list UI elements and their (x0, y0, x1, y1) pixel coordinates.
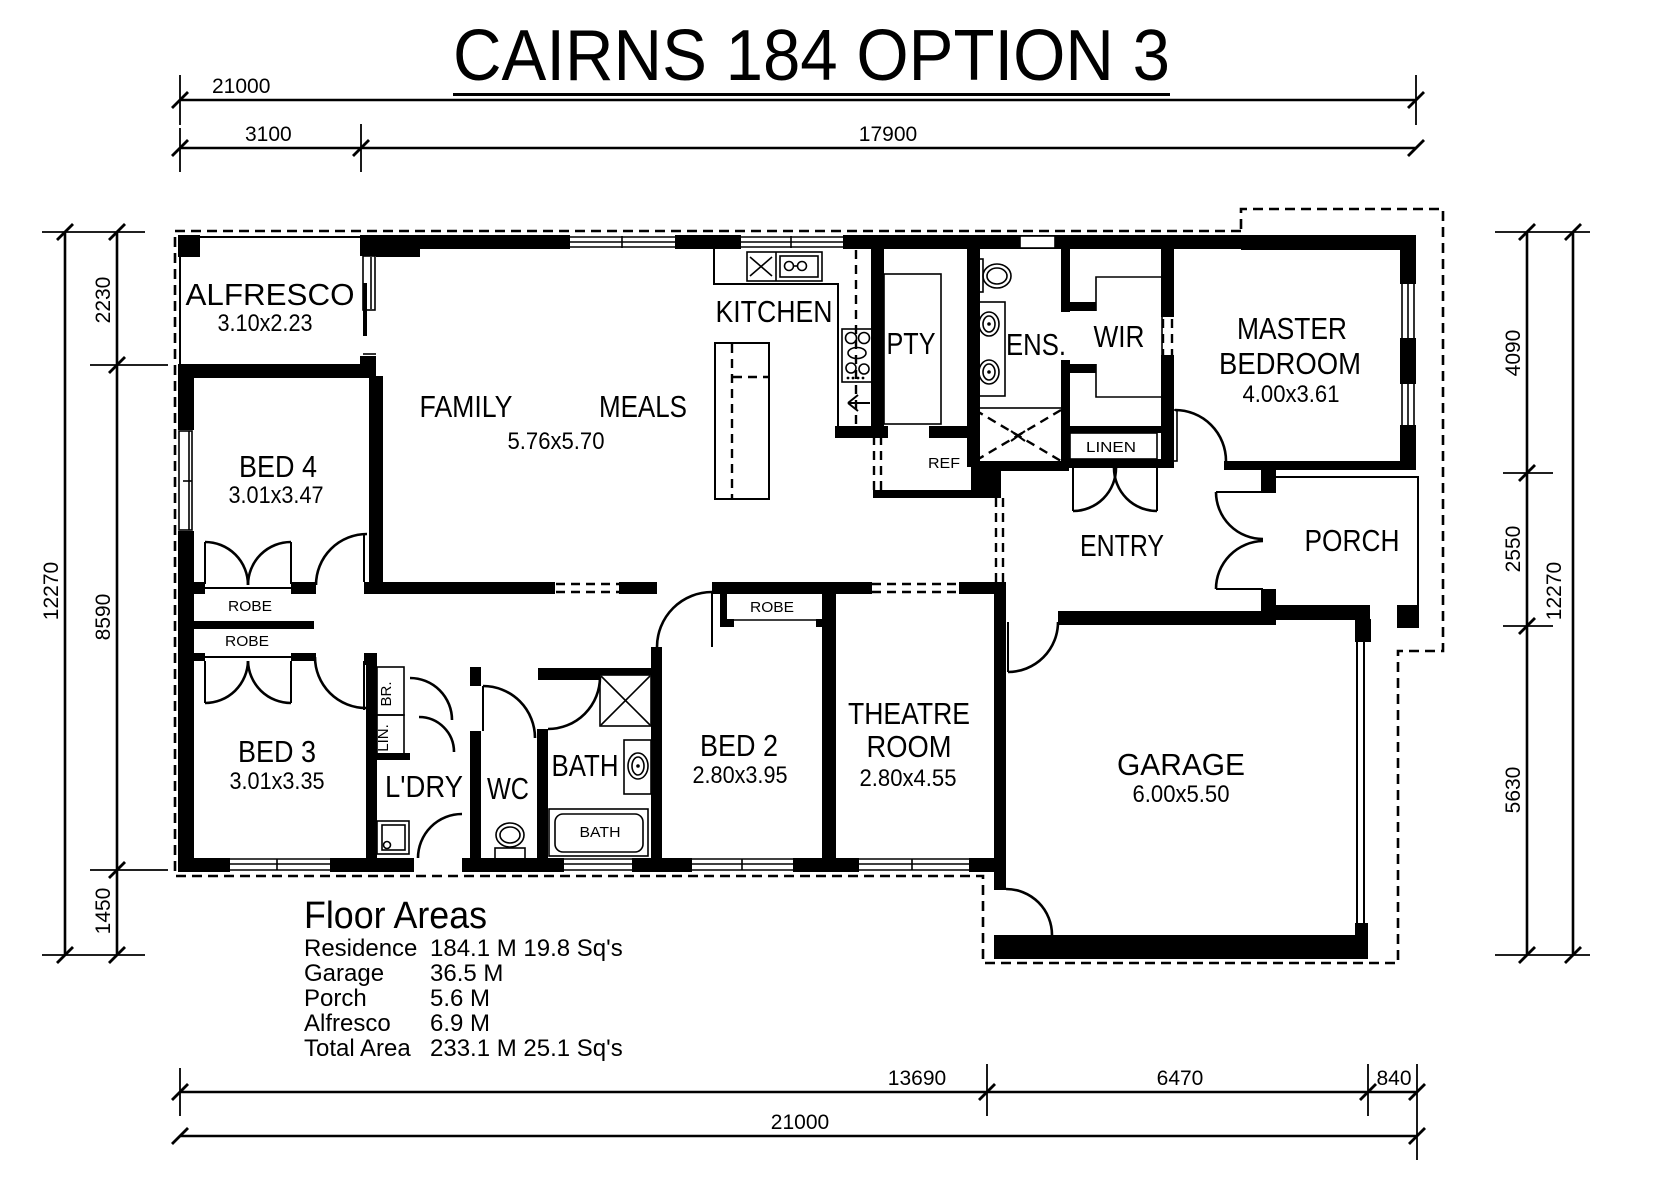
svg-text:Garage: Garage (304, 960, 384, 987)
svg-text:CAIRNS 184 OPTION 3: CAIRNS 184 OPTION 3 (453, 16, 1170, 96)
svg-text:THEATRE: THEATRE (848, 696, 970, 731)
svg-text:BEDROOM: BEDROOM (1219, 346, 1361, 381)
svg-text:840: 840 (1376, 1067, 1411, 1090)
svg-text:ENS.: ENS. (1006, 327, 1066, 362)
svg-text:KITCHEN: KITCHEN (716, 294, 833, 329)
svg-text:ROOM: ROOM (867, 729, 952, 764)
svg-text:12270: 12270 (40, 562, 63, 620)
svg-text:21000: 21000 (212, 75, 270, 98)
svg-text:PTY: PTY (887, 326, 936, 361)
svg-text:ROBE: ROBE (750, 599, 794, 616)
svg-text:6.9 M: 6.9 M (430, 1010, 490, 1037)
svg-text:5.76x5.70: 5.76x5.70 (508, 428, 605, 455)
svg-text:PORCH: PORCH (1305, 523, 1400, 558)
svg-text:BED 4: BED 4 (239, 449, 317, 484)
svg-text:LINEN: LINEN (1086, 439, 1136, 456)
svg-text:36.5 M: 36.5 M (430, 960, 503, 987)
svg-text:3.01x3.47: 3.01x3.47 (229, 482, 324, 509)
svg-text:REF: REF (928, 455, 960, 472)
svg-text:13690: 13690 (888, 1067, 946, 1090)
svg-text:Alfresco: Alfresco (304, 1010, 391, 1037)
svg-text:2230: 2230 (92, 277, 115, 324)
svg-text:ALFRESCO: ALFRESCO (186, 277, 355, 312)
svg-text:Total Area: Total Area (304, 1035, 411, 1062)
svg-text:5.6 M: 5.6 M (430, 985, 490, 1012)
svg-text:ROBE: ROBE (225, 633, 269, 650)
svg-text:3.10x2.23: 3.10x2.23 (218, 310, 313, 337)
svg-text:21000: 21000 (771, 1111, 829, 1134)
svg-text:LIN.: LIN. (375, 724, 392, 752)
svg-text:BATH: BATH (552, 748, 619, 783)
svg-text:BED 3: BED 3 (238, 734, 316, 769)
svg-text:3100: 3100 (245, 123, 292, 146)
svg-text:ENTRY: ENTRY (1080, 528, 1164, 563)
svg-text:1450: 1450 (92, 888, 115, 935)
svg-text:17900: 17900 (859, 123, 917, 146)
svg-text:ROBE: ROBE (228, 598, 272, 615)
svg-text:MASTER: MASTER (1237, 311, 1347, 346)
svg-text:WC: WC (487, 771, 529, 806)
svg-text:2.80x3.95: 2.80x3.95 (693, 762, 788, 789)
svg-text:5630: 5630 (1502, 767, 1525, 814)
svg-text:BR.: BR. (378, 681, 395, 706)
svg-text:L'DRY: L'DRY (385, 769, 463, 804)
svg-text:GARAGE: GARAGE (1117, 747, 1245, 782)
svg-text:BED 2: BED 2 (700, 728, 778, 763)
svg-text:WIR: WIR (1094, 319, 1145, 354)
svg-text:8590: 8590 (92, 594, 115, 641)
svg-text:6470: 6470 (1157, 1067, 1204, 1090)
svg-text:2550: 2550 (1502, 526, 1525, 573)
svg-text:233.1 M 25.1 Sq's: 233.1 M 25.1 Sq's (430, 1035, 623, 1062)
svg-text:4090: 4090 (1502, 330, 1525, 377)
svg-text:3.01x3.35: 3.01x3.35 (230, 768, 325, 795)
svg-text:BATH: BATH (580, 824, 621, 841)
svg-text:Residence: Residence (304, 935, 417, 962)
svg-text:184.1 M 19.8 Sq's: 184.1 M 19.8 Sq's (430, 935, 623, 962)
svg-text:Floor Areas: Floor Areas (304, 895, 487, 937)
svg-text:4.00x3.61: 4.00x3.61 (1243, 381, 1340, 408)
svg-text:6.00x5.50: 6.00x5.50 (1133, 781, 1230, 808)
svg-text:FAMILY: FAMILY (420, 389, 513, 424)
svg-text:Porch: Porch (304, 985, 367, 1012)
svg-text:MEALS: MEALS (599, 389, 687, 424)
svg-text:2.80x4.55: 2.80x4.55 (860, 765, 957, 792)
svg-text:12270: 12270 (1543, 562, 1566, 620)
